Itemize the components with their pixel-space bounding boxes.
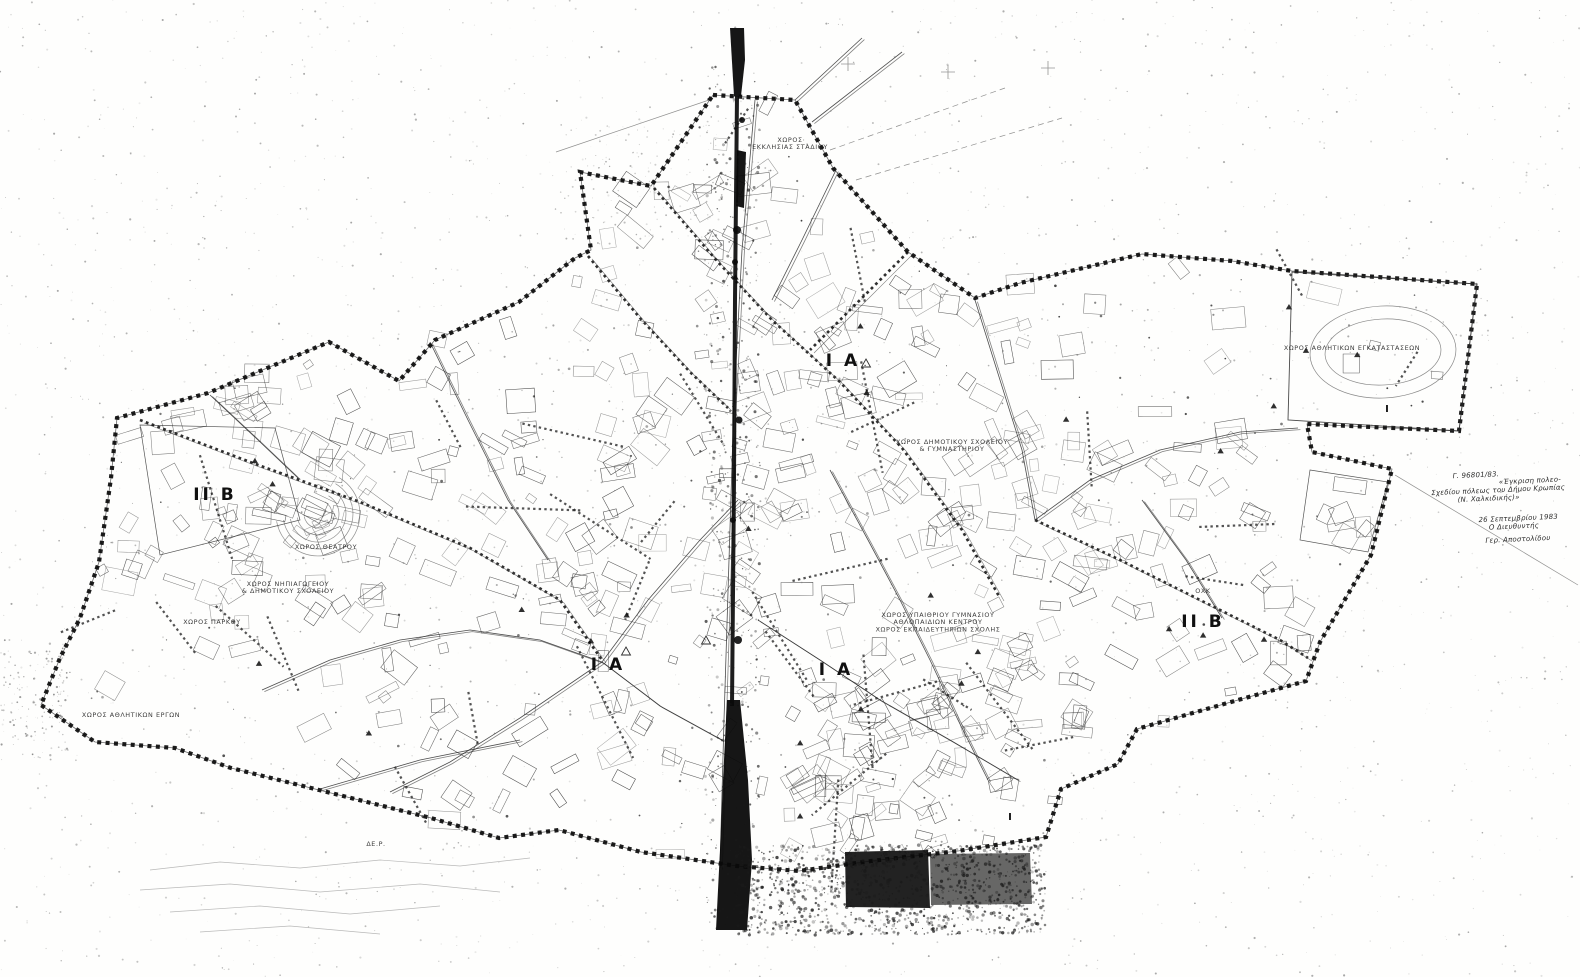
ink-speck xyxy=(859,576,862,579)
scan-speck xyxy=(1520,894,1522,896)
scan-speck xyxy=(740,476,741,477)
scan-speck xyxy=(937,849,939,851)
scan-speck xyxy=(722,541,724,543)
scan-speck xyxy=(546,46,548,48)
dotted-building-line xyxy=(1185,576,1243,585)
scan-speck xyxy=(788,866,790,868)
scan-speck xyxy=(1390,947,1391,948)
scan-speck xyxy=(608,400,610,402)
scan-speck xyxy=(1382,600,1383,601)
scan-speck xyxy=(894,857,897,860)
scan-speck xyxy=(1355,35,1356,36)
scan-speck xyxy=(575,8,577,10)
scan-speck xyxy=(865,866,868,869)
scan-speck xyxy=(1426,44,1428,46)
scan-speck xyxy=(1394,354,1396,356)
scan-speck xyxy=(606,191,608,193)
scan-speck xyxy=(1117,407,1118,408)
scan-speck xyxy=(133,126,134,127)
scan-speck xyxy=(757,777,759,779)
scan-speck xyxy=(830,656,831,657)
scan-speck xyxy=(1194,864,1195,865)
scan-speck xyxy=(1256,395,1258,397)
scan-speck xyxy=(1542,312,1544,314)
scan-speck xyxy=(1509,790,1510,791)
scan-speck xyxy=(806,930,809,933)
scan-speck xyxy=(957,933,958,934)
scan-speck xyxy=(2,723,4,725)
scan-speck xyxy=(311,46,313,48)
scan-speck xyxy=(984,862,987,865)
scan-speck xyxy=(1230,181,1232,183)
scan-speck xyxy=(412,546,413,547)
scan-speck xyxy=(862,883,864,885)
scan-speck xyxy=(722,336,725,339)
scan-speck xyxy=(982,831,984,833)
scan-speck xyxy=(933,392,934,393)
scan-speck xyxy=(529,828,531,830)
scan-speck xyxy=(724,448,725,449)
scan-speck xyxy=(1571,876,1573,878)
scan-speck xyxy=(545,327,547,329)
scan-speck xyxy=(1228,390,1229,391)
scan-speck xyxy=(741,634,743,636)
scan-speck xyxy=(1264,946,1266,948)
scan-speck xyxy=(1223,161,1225,163)
scan-speck xyxy=(1022,805,1024,807)
scan-speck xyxy=(989,877,991,879)
parcel xyxy=(1084,294,1106,315)
scan-speck xyxy=(1281,24,1283,26)
parcel xyxy=(930,283,947,298)
scan-speck xyxy=(1324,445,1325,446)
scan-speck xyxy=(556,476,557,477)
scan-speck xyxy=(722,286,723,287)
scan-speck xyxy=(1093,788,1094,789)
scan-speck xyxy=(717,353,719,355)
scan-speck xyxy=(1460,452,1461,453)
scan-speck xyxy=(1237,358,1238,359)
scan-speck xyxy=(152,129,154,131)
scan-speck xyxy=(1199,274,1201,276)
parcel xyxy=(477,612,500,634)
scan-speck xyxy=(775,880,777,882)
scan-speck xyxy=(602,97,603,98)
parcel xyxy=(115,428,143,445)
scan-speck xyxy=(832,850,835,853)
scan-speck xyxy=(647,941,649,943)
scan-speck xyxy=(747,881,749,883)
scan-speck xyxy=(1044,445,1046,447)
scan-speck xyxy=(1166,725,1168,727)
scan-speck xyxy=(711,774,714,777)
scan-speck xyxy=(750,614,753,617)
scan-speck xyxy=(754,529,756,531)
scan-speck xyxy=(1112,632,1114,634)
scan-speck xyxy=(986,878,988,880)
scan-speck xyxy=(1345,319,1346,320)
scan-speck xyxy=(747,848,750,851)
scan-speck xyxy=(870,881,873,884)
ink-speck xyxy=(558,369,560,371)
scan-speck xyxy=(1028,629,1029,630)
scan-speck xyxy=(654,192,656,194)
scan-speck xyxy=(978,868,980,870)
scan-speck xyxy=(1253,677,1255,679)
scan-speck xyxy=(873,895,876,898)
scan-speck xyxy=(947,846,949,848)
scan-speck xyxy=(920,825,921,826)
scan-speck xyxy=(415,119,417,121)
scan-speck xyxy=(565,435,566,436)
scan-speck xyxy=(970,851,972,853)
scan-speck xyxy=(732,473,735,476)
scan-speck xyxy=(1295,850,1296,851)
scan-speck xyxy=(999,864,1001,866)
scan-speck xyxy=(74,607,75,608)
scan-speck xyxy=(822,849,823,850)
scan-speck xyxy=(102,416,104,418)
scan-speck xyxy=(994,900,996,902)
scan-speck xyxy=(1287,204,1288,205)
scan-speck xyxy=(709,229,711,231)
scan-speck xyxy=(524,766,525,767)
ink-speck xyxy=(1339,563,1341,565)
scan-speck xyxy=(811,660,813,662)
scan-speck xyxy=(176,534,178,536)
scan-speck xyxy=(634,432,635,433)
scan-speck xyxy=(122,738,123,739)
scan-speck xyxy=(830,860,833,863)
scan-speck xyxy=(289,413,291,415)
scan-speck xyxy=(930,28,931,29)
scan-speck xyxy=(988,365,990,367)
scan-speck xyxy=(1499,197,1500,198)
parcel xyxy=(1138,407,1172,417)
scan-speck xyxy=(1514,439,1515,440)
parcel xyxy=(1168,257,1189,280)
scan-speck xyxy=(827,862,830,865)
scan-speck xyxy=(171,244,172,245)
terrain-contour xyxy=(140,884,500,892)
ink-speck xyxy=(1041,446,1044,449)
scan-speck xyxy=(414,554,416,556)
seam-blotch xyxy=(736,417,743,424)
survey-triangle-marker xyxy=(1063,416,1069,421)
scan-speck xyxy=(743,618,744,619)
scan-speck xyxy=(162,19,164,21)
scan-speck xyxy=(1293,814,1295,816)
scan-speck xyxy=(713,450,716,453)
scan-speck xyxy=(804,919,807,922)
scan-speck xyxy=(438,520,440,522)
scan-speck xyxy=(338,882,339,883)
scan-speck xyxy=(649,495,650,496)
ink-speck xyxy=(255,720,256,721)
scan-speck xyxy=(1482,891,1483,892)
parcel xyxy=(635,714,653,731)
scan-speck xyxy=(790,535,792,537)
scan-speck xyxy=(408,359,410,361)
scan-speck xyxy=(1415,306,1417,308)
scan-speck xyxy=(720,644,721,645)
scan-speck xyxy=(605,157,607,159)
scan-speck xyxy=(70,360,71,361)
scan-speck xyxy=(932,890,933,891)
scan-speck xyxy=(942,902,943,903)
scan-speck xyxy=(98,955,100,957)
scan-speck xyxy=(1109,752,1110,753)
scan-speck xyxy=(1451,707,1452,708)
scan-speck xyxy=(881,855,882,856)
scan-speck xyxy=(1256,100,1257,101)
scan-speck xyxy=(37,594,38,595)
scan-speck xyxy=(728,365,729,366)
scan-speck xyxy=(794,312,795,313)
scan-speck xyxy=(1484,314,1486,316)
scan-speck xyxy=(1346,87,1348,89)
scan-speck xyxy=(435,268,437,270)
scan-speck xyxy=(947,901,950,904)
scan-speck xyxy=(526,671,528,673)
scan-speck xyxy=(681,79,683,81)
parcel xyxy=(573,318,598,341)
ink-speck xyxy=(1073,775,1075,777)
scan-speck xyxy=(1340,781,1341,782)
scan-speck xyxy=(743,822,746,825)
scan-speck xyxy=(1393,10,1394,11)
scan-speck xyxy=(645,912,646,913)
scan-speck xyxy=(1467,134,1468,135)
scan-speck xyxy=(74,616,75,617)
scan-speck xyxy=(733,372,735,374)
scan-speck xyxy=(1297,110,1298,111)
scan-speck xyxy=(743,918,744,919)
scan-speck xyxy=(1047,319,1049,321)
scan-speck xyxy=(712,524,713,525)
scan-speck xyxy=(43,894,45,896)
parcel xyxy=(671,186,691,202)
scan-speck xyxy=(676,281,678,283)
scan-speck xyxy=(723,189,725,191)
scan-speck xyxy=(1206,495,1208,497)
scan-speck xyxy=(1011,15,1012,16)
scan-speck xyxy=(1122,18,1124,20)
ink-speck xyxy=(758,681,760,683)
scan-speck xyxy=(726,323,727,324)
scan-speck xyxy=(1530,963,1531,964)
scan-speck xyxy=(727,485,730,488)
scan-speck xyxy=(738,752,739,753)
scan-speck xyxy=(1086,818,1087,819)
scan-speck xyxy=(747,913,748,914)
scan-speck xyxy=(88,692,89,693)
ink-speck xyxy=(1079,397,1080,398)
scan-speck xyxy=(1253,663,1254,664)
scan-speck xyxy=(1446,456,1448,458)
scan-speck xyxy=(1243,672,1244,673)
scan-speck xyxy=(776,27,777,28)
scan-speck xyxy=(1570,877,1571,878)
scan-speck xyxy=(109,832,111,834)
scan-speck xyxy=(1062,303,1064,305)
parcel xyxy=(301,494,328,516)
scan-speck xyxy=(1005,852,1008,855)
scan-speck xyxy=(752,899,754,901)
scan-speck xyxy=(853,863,854,864)
parcel xyxy=(619,353,638,375)
scan-speck xyxy=(347,336,348,337)
scan-speck xyxy=(833,896,836,899)
scan-speck xyxy=(1370,770,1372,772)
scan-speck xyxy=(1360,243,1362,245)
scan-speck xyxy=(967,910,970,913)
scan-speck xyxy=(1075,575,1076,576)
scan-speck xyxy=(845,848,846,849)
scan-speck xyxy=(474,951,476,953)
scan-speck xyxy=(850,857,853,860)
scan-speck xyxy=(761,911,763,913)
scan-speck xyxy=(75,244,76,245)
scan-speck xyxy=(1071,199,1073,201)
scan-speck xyxy=(374,3,375,4)
scan-speck xyxy=(412,277,414,279)
scan-speck xyxy=(452,857,453,858)
scan-speck xyxy=(1302,407,1304,409)
scan-speck xyxy=(983,195,984,196)
scan-speck xyxy=(757,795,759,797)
parcel xyxy=(438,643,449,654)
ink-speck xyxy=(609,523,612,526)
scan-speck xyxy=(1353,788,1354,789)
ink-speck xyxy=(533,395,535,397)
scan-speck xyxy=(849,901,851,903)
scan-speck xyxy=(878,229,879,230)
parcel xyxy=(304,602,326,626)
scan-speck xyxy=(1316,408,1318,410)
scan-speck xyxy=(1096,465,1098,467)
feature-layer xyxy=(140,57,1477,934)
scan-speck xyxy=(1039,844,1042,847)
scan-speck xyxy=(731,502,732,503)
scan-speck xyxy=(942,891,945,894)
scan-speck xyxy=(1215,535,1217,537)
scan-speck xyxy=(236,31,237,32)
scan-speck xyxy=(1325,469,1327,471)
scan-speck xyxy=(727,285,728,286)
scan-speck xyxy=(803,889,806,892)
scan-speck xyxy=(973,879,976,882)
scan-speck xyxy=(745,436,748,439)
ink-speck xyxy=(1240,291,1241,292)
scan-speck xyxy=(270,763,271,764)
scan-speck xyxy=(568,341,570,343)
scan-speck xyxy=(664,524,666,526)
scan-speck xyxy=(244,742,245,743)
scan-speck xyxy=(60,694,61,695)
scan-speck xyxy=(1301,728,1303,730)
scan-speck xyxy=(1174,308,1175,309)
scan-speck xyxy=(637,600,638,601)
scan-speck xyxy=(879,866,880,867)
scan-speck xyxy=(287,620,289,622)
scan-speck xyxy=(46,911,47,912)
scan-speck xyxy=(795,933,797,935)
scan-speck xyxy=(305,156,306,157)
scan-speck xyxy=(1273,200,1275,202)
scan-speck xyxy=(1527,332,1528,333)
scan-speck xyxy=(1565,15,1566,16)
scan-speck xyxy=(725,412,726,413)
scan-speck xyxy=(678,408,679,409)
scan-speck xyxy=(942,544,944,546)
scan-speck xyxy=(1,552,2,553)
scan-speck xyxy=(413,87,414,88)
scan-speck xyxy=(1504,853,1505,854)
scan-speck xyxy=(903,898,905,900)
scan-speck xyxy=(743,249,744,250)
scan-speck xyxy=(1341,854,1342,855)
scan-speck xyxy=(263,540,264,541)
scan-speck xyxy=(708,415,711,418)
scan-speck xyxy=(145,232,146,233)
scan-speck xyxy=(1184,482,1185,483)
scan-speck xyxy=(803,139,804,140)
scan-speck xyxy=(1223,124,1224,125)
scan-speck xyxy=(1046,767,1047,768)
scan-speck xyxy=(749,375,751,377)
scan-speck xyxy=(296,569,297,570)
scan-speck xyxy=(112,0,113,1)
road-line xyxy=(264,632,604,692)
scan-speck xyxy=(724,600,725,601)
scan-speck xyxy=(746,396,747,397)
scan-speck xyxy=(1503,935,1504,936)
scan-speck xyxy=(272,31,273,32)
scan-speck xyxy=(846,878,848,880)
scan-speck xyxy=(746,741,747,742)
scan-speck xyxy=(618,51,620,53)
scan-speck xyxy=(703,126,704,127)
scan-speck xyxy=(449,134,451,136)
scan-speck xyxy=(251,758,253,760)
scan-speck xyxy=(1554,299,1555,300)
scan-speck xyxy=(1363,30,1364,31)
scan-speck xyxy=(64,628,65,629)
scan-speck xyxy=(307,788,308,789)
scan-speck xyxy=(1158,311,1159,312)
scan-speck xyxy=(996,848,998,850)
scan-speck xyxy=(752,162,753,163)
scan-speck xyxy=(689,791,690,792)
scan-speck xyxy=(711,516,714,519)
scan-speck xyxy=(249,717,251,719)
scan-speck xyxy=(1017,856,1020,859)
scan-speck xyxy=(734,430,736,432)
scan-speck xyxy=(38,23,40,25)
scan-speck xyxy=(717,400,719,402)
scan-speck xyxy=(1469,973,1471,975)
ink-speck xyxy=(1019,560,1020,561)
scan-speck xyxy=(779,311,781,313)
parcel xyxy=(1092,440,1117,466)
scan-speck xyxy=(1074,39,1075,40)
scan-speck xyxy=(1024,333,1026,335)
scan-speck xyxy=(1276,231,1278,233)
scan-speck xyxy=(1006,917,1009,920)
scan-speck xyxy=(757,429,759,431)
scan-speck xyxy=(1408,35,1410,37)
